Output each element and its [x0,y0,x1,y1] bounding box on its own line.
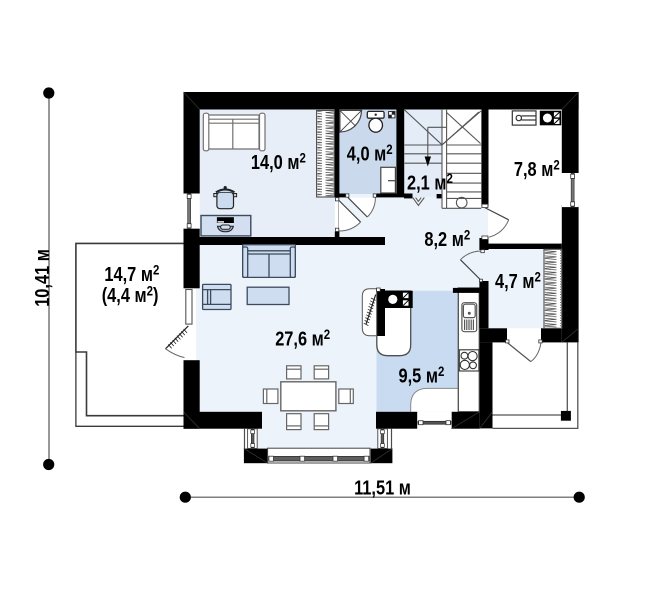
svg-text:10,41 м: 10,41 м [31,249,54,307]
svg-text:7,8 м2: 7,8 м2 [514,156,560,180]
svg-text:8,2 м2: 8,2 м2 [424,226,470,250]
svg-text:27,6 м2: 27,6 м2 [275,326,330,350]
svg-text:4,7 м2: 4,7 м2 [495,268,541,292]
svg-text:2,1 м2: 2,1 м2 [407,170,453,194]
svg-text:14,0 м2: 14,0 м2 [251,150,306,174]
svg-text:4,0 м2: 4,0 м2 [347,141,393,165]
svg-text:9,5 м2: 9,5 м2 [399,363,445,387]
svg-text:11,51 м: 11,51 м [354,476,411,499]
